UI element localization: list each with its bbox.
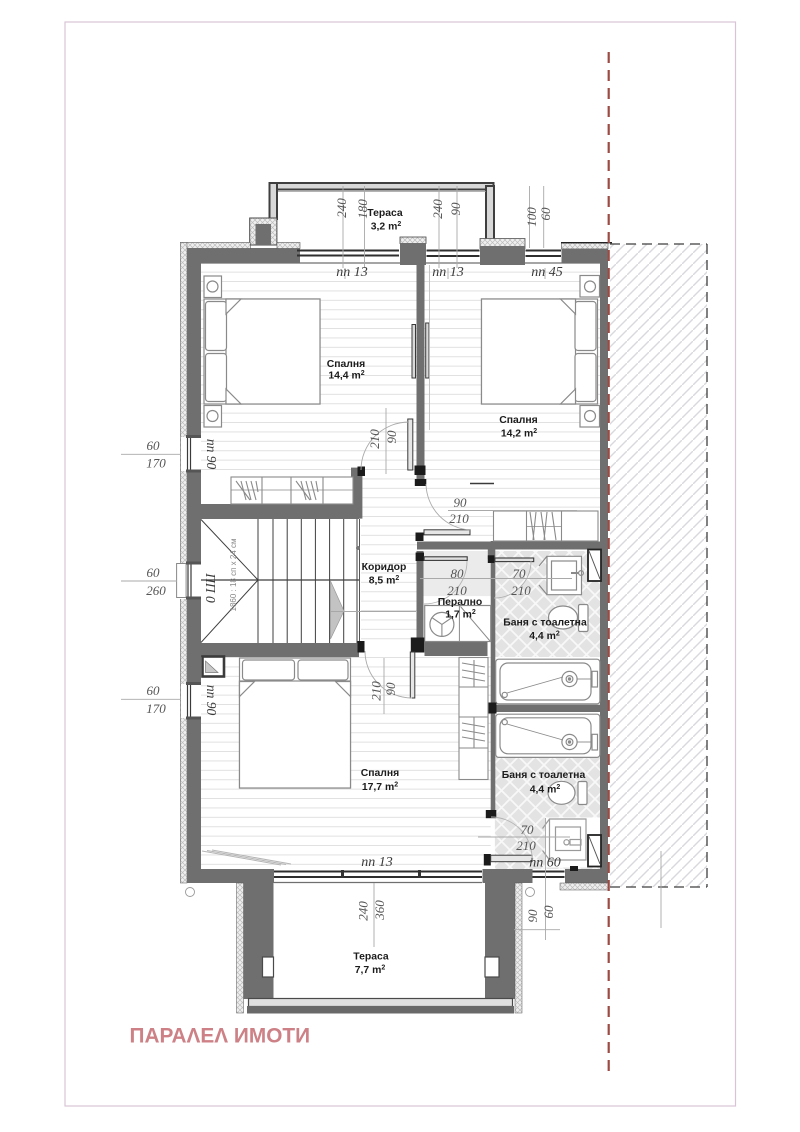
svg-text:210: 210	[449, 511, 469, 526]
svg-text:пп 60: пп 60	[529, 856, 561, 871]
svg-text:ПП 0: ПП 0	[203, 572, 218, 603]
svg-text:260: 260	[146, 583, 166, 598]
svg-text:240: 240	[430, 199, 445, 219]
svg-text:ПАРАΛЕΛ ИМОТИ: ПАРАΛЕΛ ИМОТИ	[130, 1025, 311, 1048]
svg-text:210: 210	[369, 681, 384, 701]
svg-text:90: 90	[383, 682, 398, 696]
svg-text:Баня с тоалетна: Баня с тоалетна	[503, 618, 587, 629]
svg-text:Тераса: Тераса	[367, 208, 403, 219]
svg-text:70: 70	[513, 566, 527, 581]
svg-text:Перално: Перално	[438, 597, 483, 608]
svg-text:17,7 m2: 17,7 m2	[362, 782, 398, 794]
svg-text:пп 13: пп 13	[432, 265, 464, 280]
svg-text:210: 210	[511, 583, 531, 598]
svg-text:14,2 m2: 14,2 m2	[501, 428, 537, 440]
svg-text:60: 60	[541, 905, 556, 919]
svg-text:60: 60	[147, 565, 161, 580]
svg-text:пп 90: пп 90	[204, 685, 219, 716]
svg-text:60: 60	[147, 683, 161, 698]
svg-text:90: 90	[454, 495, 468, 510]
svg-text:100: 100	[524, 207, 539, 227]
svg-text:4,4 m2: 4,4 m2	[529, 631, 560, 643]
svg-text:Спалня: Спалня	[327, 359, 366, 370]
svg-text:240: 240	[334, 198, 349, 218]
svg-text:60: 60	[538, 207, 553, 221]
svg-text:210: 210	[367, 429, 382, 449]
svg-text:Спалня: Спалня	[499, 415, 538, 426]
svg-text:пп 13: пп 13	[361, 855, 393, 870]
svg-text:1,7 m2: 1,7 m2	[445, 609, 476, 621]
svg-text:210: 210	[447, 583, 467, 598]
svg-text:пп 45: пп 45	[531, 265, 563, 280]
svg-text:210: 210	[516, 838, 536, 853]
svg-text:180: 180	[355, 199, 370, 219]
svg-text:240: 240	[356, 901, 371, 921]
svg-text:90: 90	[525, 909, 540, 923]
svg-text:Коридор: Коридор	[362, 562, 407, 573]
svg-text:7,7 m2: 7,7 m2	[355, 965, 386, 977]
svg-text:170: 170	[146, 701, 166, 716]
svg-text:360: 360	[372, 900, 387, 921]
svg-text:90: 90	[384, 430, 399, 444]
svg-text:14,4 m2: 14,4 m2	[328, 370, 364, 382]
svg-text:пп 90: пп 90	[204, 439, 219, 470]
svg-text:Тераса: Тераса	[353, 952, 389, 963]
svg-text:90: 90	[448, 202, 463, 216]
svg-text:170: 170	[146, 456, 166, 471]
svg-text:Спалня: Спалня	[361, 768, 400, 779]
svg-text:3,2 m2: 3,2 m2	[371, 221, 402, 233]
svg-text:60: 60	[147, 438, 161, 453]
svg-text:4,4 m2: 4,4 m2	[530, 784, 561, 796]
svg-text:8,5 m2: 8,5 m2	[369, 575, 400, 587]
svg-text:1860 : 18 сп x 24 см: 1860 : 18 сп x 24 см	[229, 539, 238, 612]
svg-text:70: 70	[521, 822, 535, 837]
svg-text:Баня с тоалетна: Баня с тоалетна	[502, 770, 586, 781]
svg-text:пп 13: пп 13	[336, 265, 368, 280]
svg-text:80: 80	[451, 566, 465, 581]
